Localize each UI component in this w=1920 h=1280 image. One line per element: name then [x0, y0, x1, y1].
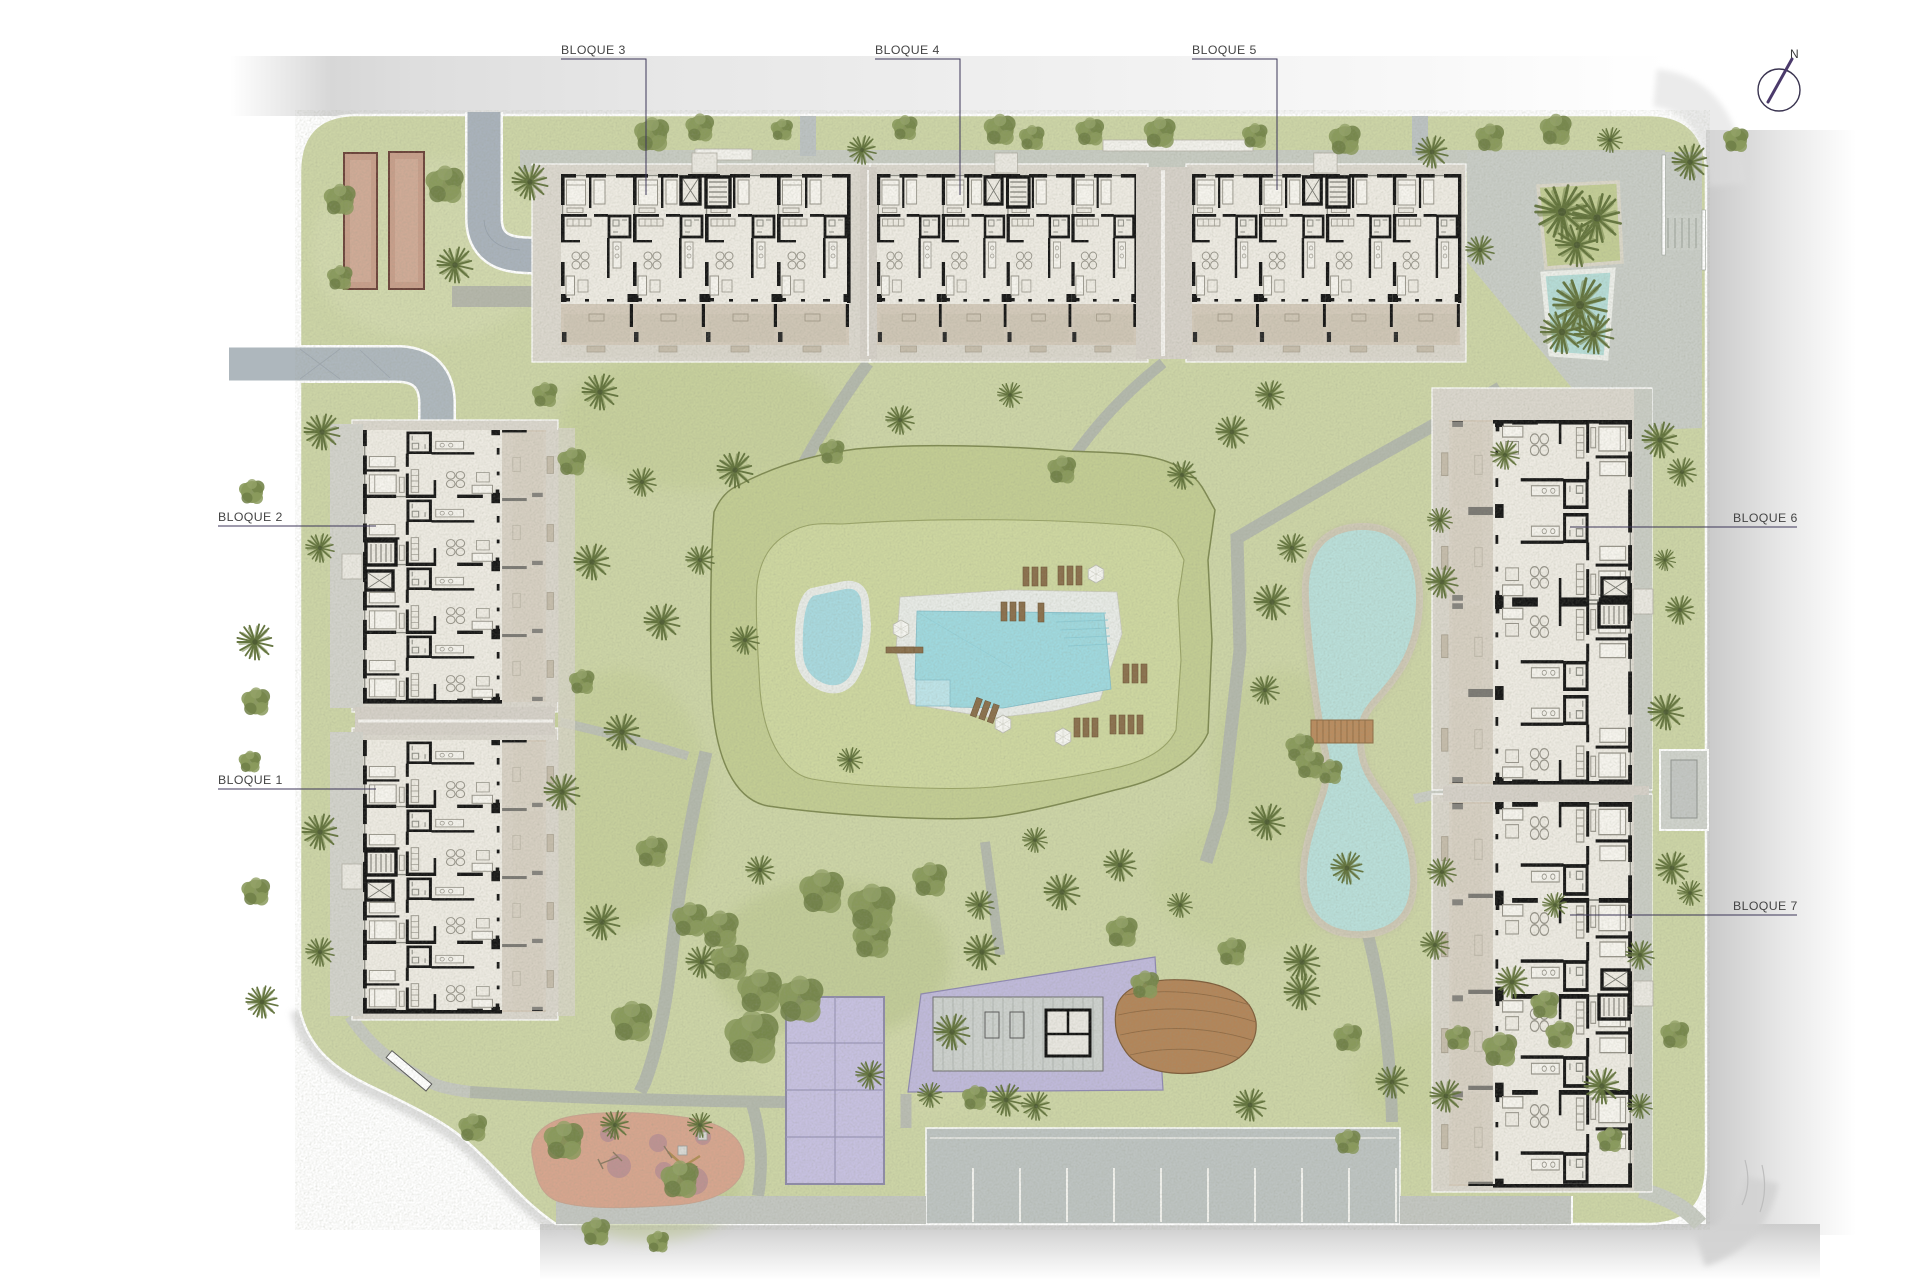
svg-text:BLOQUE 4: BLOQUE 4: [875, 43, 940, 57]
svg-text:BLOQUE 7: BLOQUE 7: [1733, 899, 1798, 913]
svg-text:BLOQUE 3: BLOQUE 3: [561, 43, 626, 57]
svg-text:BLOQUE 2: BLOQUE 2: [218, 510, 283, 524]
svg-text:N: N: [1790, 47, 1799, 61]
svg-text:BLOQUE 5: BLOQUE 5: [1192, 43, 1257, 57]
svg-text:BLOQUE 1: BLOQUE 1: [218, 773, 283, 787]
svg-text:BLOQUE 6: BLOQUE 6: [1733, 511, 1798, 525]
